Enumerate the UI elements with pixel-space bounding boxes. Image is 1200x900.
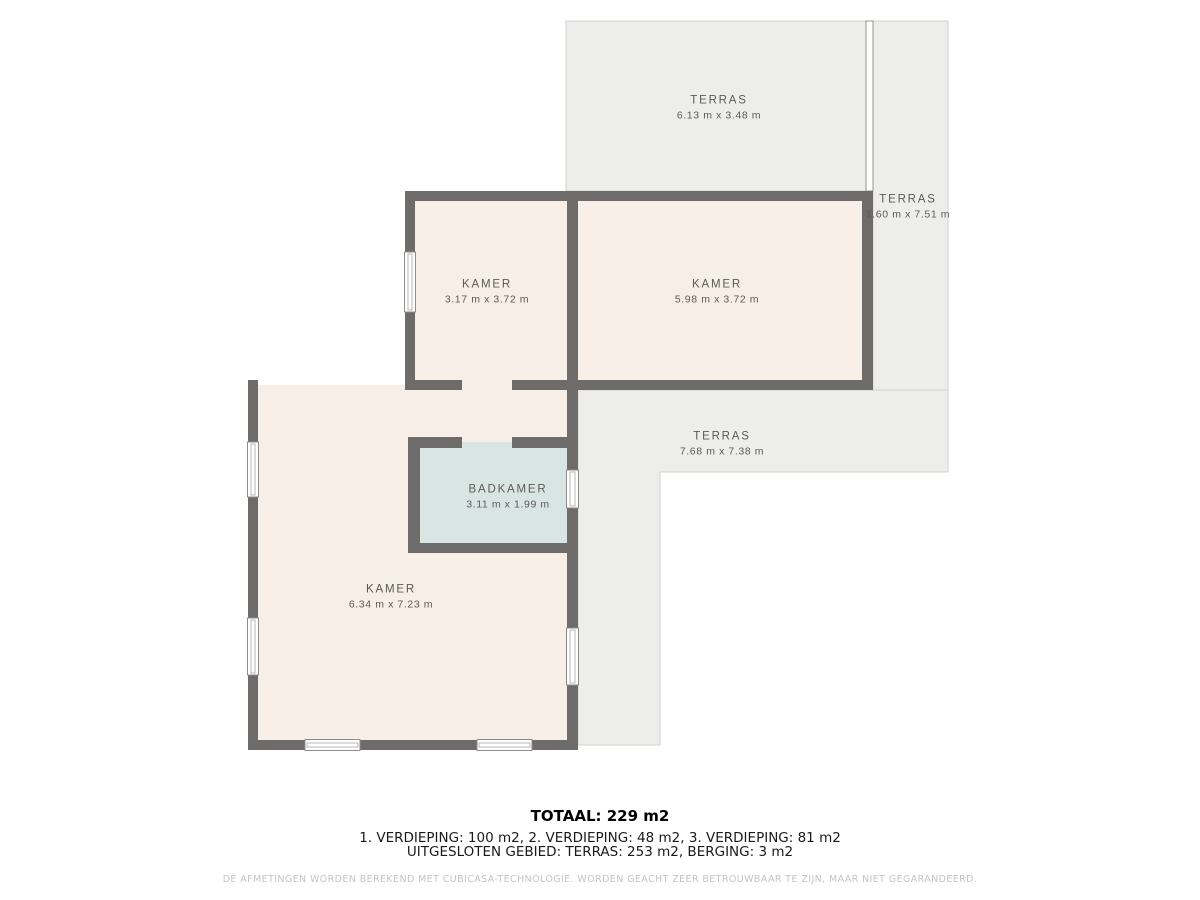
wall-badkamer-north-a — [408, 437, 462, 448]
wall-kamer-left-south-b — [512, 380, 578, 390]
wall-top — [405, 191, 873, 201]
room-dimensions: 6.13 m x 3.48 m — [677, 110, 761, 122]
disclaimer-text: DE AFMETINGEN WORDEN BEREKEND MET CUBICA… — [0, 875, 1200, 885]
room-name: TERRAS — [680, 431, 764, 443]
room-dimensions: 7.68 m x 7.38 m — [680, 446, 764, 458]
room-name: KAMER — [349, 584, 433, 596]
label-kamer-right: KAMER 5.98 m x 3.72 m — [675, 279, 759, 306]
room-name: BADKAMER — [466, 484, 550, 496]
room-dimensions: 3.17 m x 3.72 m — [445, 294, 529, 306]
window — [567, 470, 579, 508]
room-dimensions: 5.98 m x 3.72 m — [675, 294, 759, 306]
wall-kamer-left-south-a — [405, 380, 462, 390]
terrace-glass-divider — [866, 21, 873, 191]
wall-kamer-right-east — [862, 191, 873, 390]
label-kamer-left: KAMER 3.17 m x 3.72 m — [445, 279, 529, 306]
label-terras-middle: TERRAS 7.68 m x 7.38 m — [680, 431, 764, 458]
label-terras-top: TERRAS 6.13 m x 3.48 m — [677, 95, 761, 122]
floor-areas-text: 1. VERDIEPING: 100 m2, 2. VERDIEPING: 48… — [0, 831, 1200, 845]
floorplan-drawing — [0, 0, 1200, 900]
room-dimensions: 6.34 m x 7.23 m — [349, 599, 433, 611]
room-name: KAMER — [675, 279, 759, 291]
label-badkamer: BADKAMER 3.11 m x 1.99 m — [466, 484, 550, 511]
total-area-text: TOTAAL: 229 m2 — [0, 808, 1200, 824]
label-terras-right: TERRAS 1.60 m x 7.51 m — [866, 194, 950, 221]
label-kamer-bottom: KAMER 6.34 m x 7.23 m — [349, 584, 433, 611]
excluded-areas-text: UITGESLOTEN GEBIED: TERRAS: 253 m2, BERG… — [0, 845, 1200, 859]
room-dimensions: 1.60 m x 7.51 m — [866, 209, 950, 221]
room-name: TERRAS — [677, 95, 761, 107]
room-dimensions: 3.11 m x 1.99 m — [466, 499, 550, 511]
window — [567, 628, 579, 685]
room-name: TERRAS — [866, 194, 950, 206]
window — [248, 618, 259, 675]
area-summary: TOTAAL: 229 m2 1. VERDIEPING: 100 m2, 2.… — [0, 808, 1200, 885]
floorplan-page: TERRAS 6.13 m x 3.48 m TERRAS 1.60 m x 7… — [0, 0, 1200, 900]
wall-badkamer-north-b — [512, 437, 567, 448]
window — [405, 252, 416, 312]
wall-badkamer-west — [408, 437, 420, 553]
wall-kamer-right-south — [578, 380, 873, 390]
room-name: KAMER — [445, 279, 529, 291]
window — [477, 740, 532, 751]
wall-badkamer-south — [408, 543, 578, 553]
window — [248, 442, 259, 497]
window — [305, 740, 360, 751]
wall-kamer-bottom-west — [248, 380, 258, 750]
